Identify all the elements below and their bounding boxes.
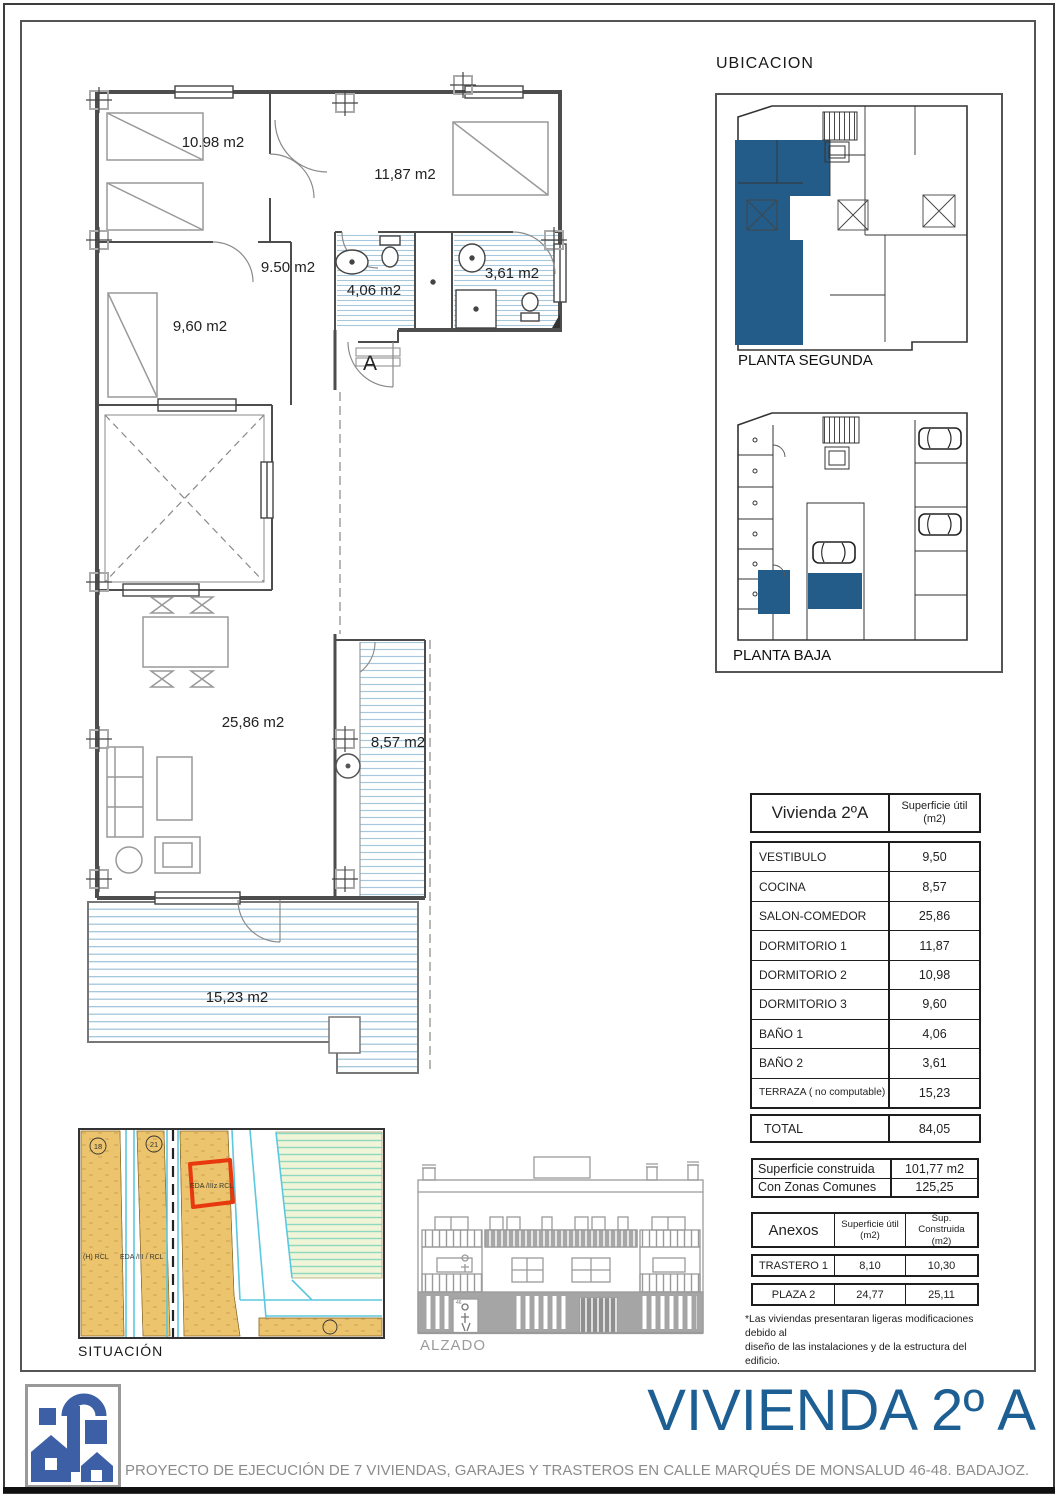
upper-railings [422, 1230, 700, 1247]
logo-window [45, 1458, 57, 1470]
total-label: TOTAL [752, 1116, 890, 1141]
row-value: 25,11 [906, 1285, 977, 1304]
car-icon [919, 514, 961, 535]
table-row: Con Zonas Comunes 125,25 [753, 1179, 977, 1197]
stairs [823, 112, 857, 140]
construida-table: Superficie construida 101,77 m2 Con Zona… [751, 1158, 979, 1198]
surface-table-body: VESTIBULO 9,50 COCINA 8,57 SALON-COMEDOR… [750, 841, 981, 1109]
situacion-label: SITUACIÓN [78, 1343, 163, 1359]
total-value: 84,05 [890, 1116, 979, 1141]
planta-baja-plan: PLANTA BAJA [733, 413, 967, 664]
window [158, 399, 236, 411]
toilet [521, 293, 539, 321]
upper-windows [435, 1217, 685, 1230]
row-value: 101,77 m2 [892, 1160, 977, 1178]
table-row: BAÑO 1 4,06 [752, 1020, 979, 1049]
anexos-title: Anexos [753, 1214, 835, 1246]
portal-number: 46 [456, 1300, 462, 1306]
room-area-label: 11,87 m2 [374, 166, 435, 183]
double-bed [453, 122, 548, 195]
row-label: DORMITORIO 1 [752, 931, 890, 959]
chair [151, 671, 173, 687]
planta-baja-label: PLANTA BAJA [733, 647, 831, 664]
row-value: 9,50 [890, 843, 979, 871]
washbasin [336, 250, 368, 274]
section-mark-label: A [363, 352, 377, 375]
row-value: 9,60 [890, 990, 979, 1018]
room-area-label: 9.50 m2 [261, 259, 315, 276]
table-row: Superficie construida 101,77 m2 [753, 1160, 977, 1179]
plaza-2-highlight [808, 573, 862, 609]
footnote-line: diseño de las instalaciones y de la estr… [745, 1341, 987, 1369]
table-row: PLAZA 2 24,77 25,11 [751, 1283, 979, 1306]
floor-plan: 10.98 m2 11,87 m2 9.50 m2 4,06 m2 3,61 m… [58, 58, 578, 1088]
door-arc [275, 120, 327, 172]
row-label: VESTIBULO [752, 843, 890, 871]
row-label: DORMITORIO 3 [752, 990, 890, 1018]
surface-table-unit-header: Superficie útil (m2) [890, 795, 979, 831]
zone-label: (H) RCL [83, 1254, 109, 1261]
row-label: Superficie construida [753, 1160, 892, 1178]
terrace-deck [88, 902, 418, 1073]
table-row: SALON-COMEDOR 25,86 [752, 902, 979, 931]
chimney [687, 1162, 699, 1180]
door-arc [270, 154, 314, 198]
window [261, 462, 273, 518]
ubicacion-title: UBICACION [716, 55, 814, 73]
footnote-line: *Las viviendas presentaran ligeras modif… [745, 1313, 987, 1341]
row-label: SALON-COMEDOR [752, 902, 890, 930]
table-row: DORMITORIO 3 9,60 [752, 990, 979, 1019]
shower-tray [456, 290, 496, 328]
chimney [646, 1164, 658, 1180]
room-area-label: 25,86 m2 [222, 714, 285, 731]
door-arc [213, 242, 253, 282]
room-area-label: 9,60 m2 [173, 318, 227, 335]
row-value: 125,25 [892, 1179, 977, 1197]
logo-window [91, 1470, 102, 1481]
armchair [155, 837, 200, 873]
table-row: TERRAZA ( no computable) 15,23 [752, 1079, 979, 1107]
studio-logo [25, 1384, 121, 1488]
anexos-col-construida: Sup. Construida (m2) [906, 1214, 977, 1246]
table-row: VESTIBULO 9,50 [752, 843, 979, 872]
first-floor [422, 1247, 700, 1292]
row-value: 3,61 [890, 1049, 979, 1077]
roof-structure [534, 1157, 590, 1178]
room-area-label: 15,23 m2 [206, 989, 269, 1006]
chair [191, 671, 213, 687]
room-area-label: 10.98 m2 [182, 134, 245, 151]
chimney [422, 1165, 436, 1180]
window [554, 244, 566, 302]
window [175, 86, 233, 98]
table-row: COCINA 8,57 [752, 872, 979, 901]
row-label: PLAZA 2 [753, 1285, 835, 1304]
table-row: BAÑO 2 3,61 [752, 1049, 979, 1078]
project-description: PROYECTO DE EJECUCIÓN DE 7 VIVIENDAS, GA… [125, 1462, 1037, 1479]
alzado-elevation: 46 [415, 1150, 710, 1336]
anexos-col-util: Superficie útil (m2) [835, 1214, 906, 1246]
row-value: 11,87 [890, 931, 979, 959]
car-icon [919, 428, 961, 449]
row-value: 8,57 [890, 872, 979, 900]
single-bed [107, 183, 203, 230]
table-row: TRASTERO 1 8,10 10,30 [751, 1254, 979, 1277]
situacion-map: EDA /IIIz RCL EDA /III / RCL (H) RCL 18 … [78, 1128, 385, 1339]
surface-table-title: Vivienda 2ºA [752, 795, 890, 831]
ground-floor: 46 [418, 1292, 703, 1333]
row-label: TRASTERO 1 [753, 1256, 835, 1275]
ubicacion-plans: PLANTA SEGUNDA [717, 95, 1001, 671]
row-value: 24,77 [835, 1285, 906, 1304]
bath1-tiled-floor [337, 234, 415, 328]
anexos-header: Anexos Superficie útil (m2) Sup. Constru… [751, 1212, 979, 1248]
planta-segunda-label: PLANTA SEGUNDA [738, 352, 873, 369]
alzado-label: ALZADO [420, 1337, 486, 1354]
window [123, 584, 199, 596]
sofa [107, 747, 143, 837]
kitchen-sink [336, 754, 360, 778]
row-label: BAÑO 1 [752, 1020, 890, 1048]
title-block-rule [3, 1487, 1055, 1493]
row-value: 25,86 [890, 902, 979, 930]
row-label: Con Zonas Comunes [753, 1179, 892, 1197]
row-value: 10,30 [906, 1256, 977, 1275]
ubicacion-box: PLANTA SEGUNDA [715, 93, 1003, 673]
table-row: DORMITORIO 2 10,98 [752, 961, 979, 990]
surface-table-total: TOTAL 84,05 [750, 1114, 981, 1143]
row-label: TERRAZA ( no computable) [752, 1079, 890, 1107]
row-value: 4,06 [890, 1020, 979, 1048]
room-area-label: 8,57 m2 [371, 734, 425, 751]
room-area-label: 3,61 m2 [485, 265, 539, 282]
row-value: 10,98 [890, 961, 979, 989]
car-icon [813, 542, 855, 563]
room-area-label: 4,06 m2 [347, 282, 401, 299]
zone-label: EDA /IIIz RCL [190, 1183, 233, 1190]
kitchen-tiled-floor [360, 642, 424, 896]
single-bed [108, 293, 157, 397]
terrace-unit [329, 1017, 360, 1053]
stairs [823, 417, 859, 443]
toilet [380, 236, 400, 267]
kitchen-fittings [336, 642, 360, 896]
surface-table-header: Vivienda 2ºA Superficie útil (m2) [750, 793, 981, 833]
patio-light-well [105, 415, 264, 582]
plan-sheet: 10.98 m2 11,87 m2 9.50 m2 4,06 m2 3,61 m… [0, 0, 1058, 1497]
dining-table [143, 617, 228, 667]
side-table [116, 847, 142, 873]
map-green-zone [276, 1132, 382, 1278]
row-value: 8,10 [835, 1256, 906, 1275]
row-label: BAÑO 2 [752, 1049, 890, 1077]
footnote: *Las viviendas presentaran ligeras modif… [745, 1313, 987, 1369]
sheet-title: VIVIENDA 2º A [540, 1381, 1036, 1442]
planta-segunda-plan: PLANTA SEGUNDA [735, 106, 967, 369]
table-row: DORMITORIO 1 11,87 [752, 931, 979, 960]
row-value: 15,23 [890, 1079, 979, 1107]
washbasin [459, 244, 485, 272]
row-label: DORMITORIO 2 [752, 961, 890, 989]
chair [191, 597, 213, 613]
parcel-number: 21 [150, 1140, 158, 1149]
coffee-table [157, 757, 192, 820]
window [155, 892, 240, 904]
shaft-mark [431, 280, 435, 284]
zone-label: EDA /III / RCL [120, 1254, 164, 1261]
row-label: COCINA [752, 872, 890, 900]
chair [151, 597, 173, 613]
window [465, 86, 523, 98]
parcel-number: 18 [94, 1142, 102, 1151]
